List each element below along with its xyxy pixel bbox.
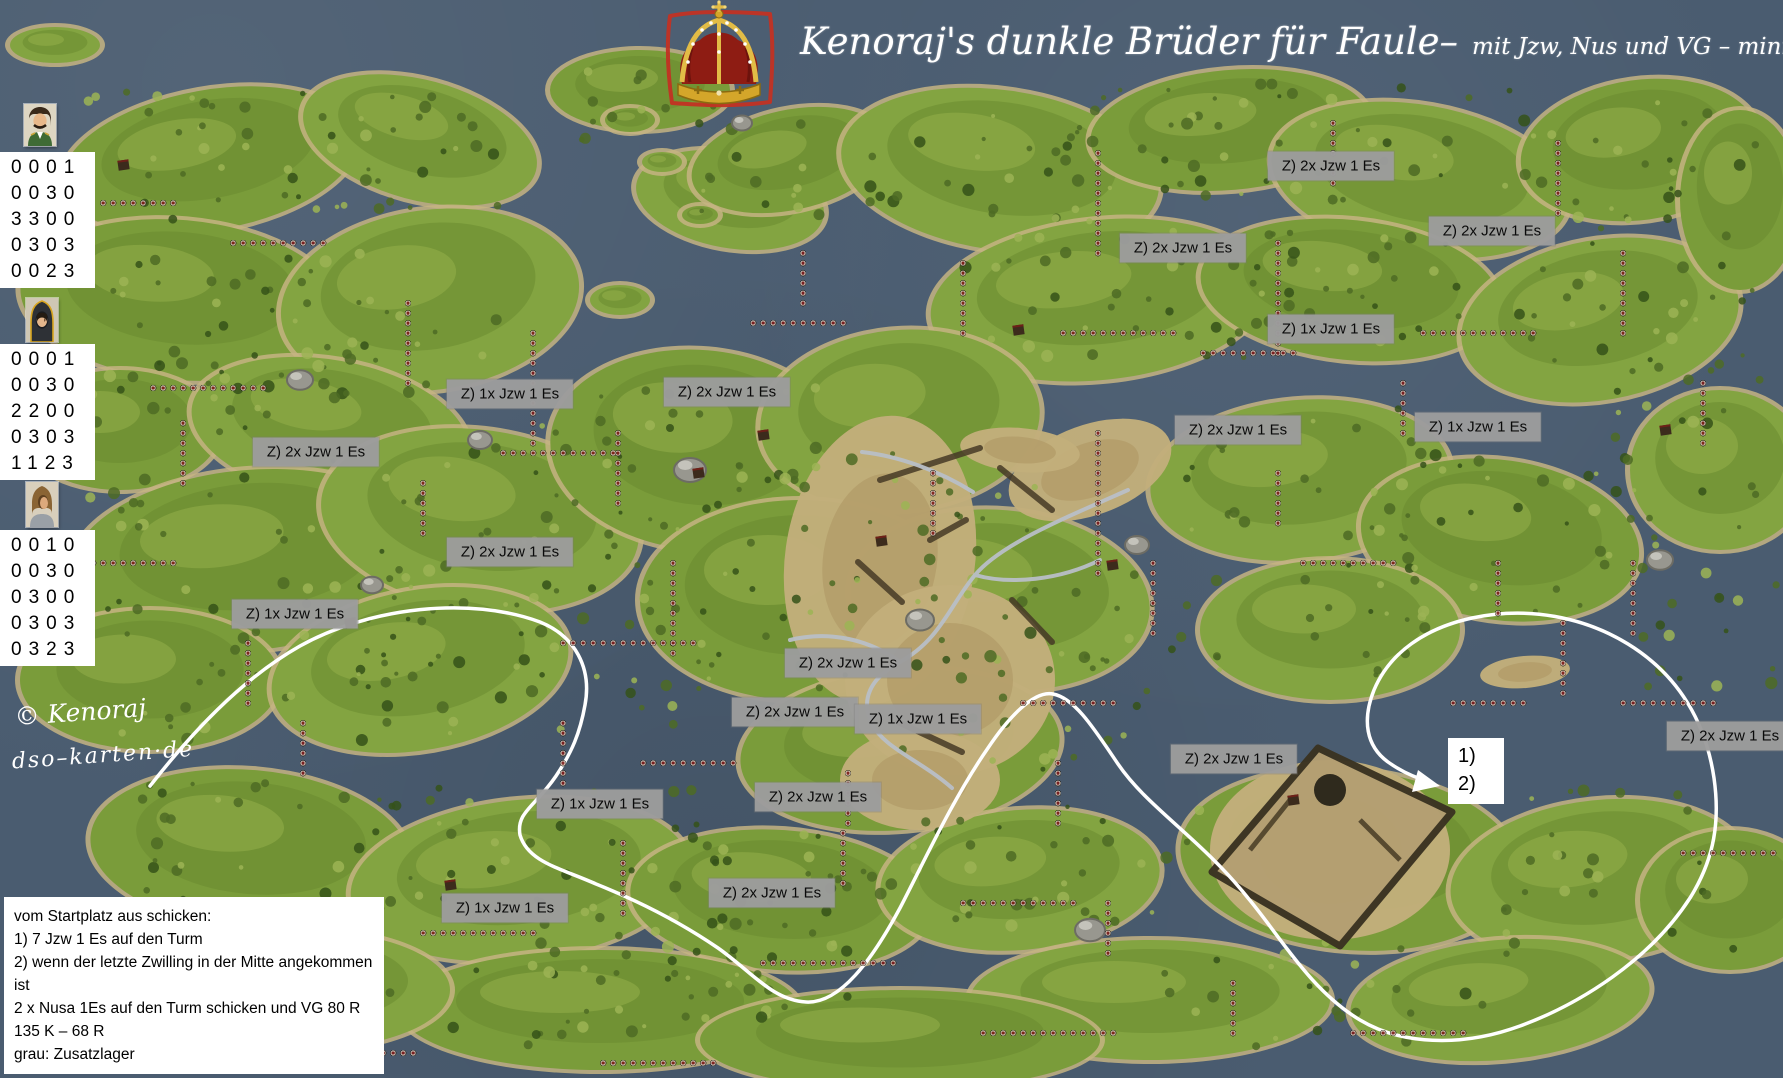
map-label: Z) 1x Jzw 1 Es bbox=[447, 380, 573, 409]
map-label: Z) 2x Jzw 1 Es bbox=[447, 538, 573, 567]
enemy-camp-hut bbox=[1106, 559, 1118, 570]
map-label: Z) 2x Jzw 1 Es bbox=[709, 879, 835, 908]
map-label: Z) 1x Jzw 1 Es bbox=[1415, 413, 1541, 442]
map-label: Z) 2x Jzw 1 Es bbox=[1120, 234, 1246, 263]
map-label: Z) 1x Jzw 1 Es bbox=[442, 894, 568, 923]
enemy-camp-hut bbox=[757, 429, 769, 440]
tower-icon bbox=[1314, 774, 1346, 806]
map-label: Z) 2x Jzw 1 Es bbox=[1429, 217, 1555, 246]
enemy-camp-hut bbox=[1659, 424, 1671, 435]
route-note: 1) 2) bbox=[1448, 738, 1504, 804]
map-label: Z) 1x Jzw 1 Es bbox=[1268, 315, 1394, 344]
enemy-camp-hut bbox=[1287, 794, 1299, 805]
crown-logo bbox=[648, 0, 788, 115]
map-label: Z) 2x Jzw 1 Es bbox=[732, 698, 858, 727]
map-label: Z) 1x Jzw 1 Es bbox=[537, 790, 663, 819]
map-label: Z) 2x Jzw 1 Es bbox=[1171, 745, 1297, 774]
troop-grid-2: 00010030 22000303 1123 bbox=[0, 344, 95, 480]
enemy-camp-hut bbox=[1012, 324, 1024, 335]
map-label: Z) 2x Jzw 1 Es bbox=[664, 378, 790, 407]
map-label: Z) 2x Jzw 1 Es bbox=[1268, 152, 1394, 181]
map-label: Z) 1x Jzw 1 Es bbox=[232, 600, 358, 629]
map-label: Z) 2x Jzw 1 Es bbox=[1175, 416, 1301, 445]
map-label: Z) 2x Jzw 1 Es bbox=[755, 783, 881, 812]
troop-grid-3: 00100030 03000303 0323 bbox=[0, 530, 95, 666]
map-label: Z) 2x Jzw 1 Es bbox=[1667, 722, 1783, 751]
map-label: Z) 2x Jzw 1 Es bbox=[253, 438, 379, 467]
enemy-camp-hut bbox=[444, 879, 456, 890]
map-label: Z) 2x Jzw 1 Es bbox=[785, 649, 911, 678]
troop-grid-1: 00010030 33000303 0023 bbox=[0, 152, 95, 288]
map-label: Z) 1x Jzw 1 Es bbox=[855, 705, 981, 734]
general-portrait-3 bbox=[26, 482, 58, 527]
enemy-camp-hut bbox=[875, 535, 887, 546]
title-subtitle: mit Jzw, Nus und VG – minimale Verluste bbox=[1472, 34, 1783, 60]
crown-icon bbox=[678, 0, 760, 103]
title-main: Kenoraj's dunkle Brüder für Faule– bbox=[800, 20, 1458, 63]
adventure-map: Kenoraj's dunkle Brüder für Faule– mit J… bbox=[0, 0, 1783, 1078]
map-title: Kenoraj's dunkle Brüder für Faule– mit J… bbox=[800, 20, 1783, 63]
watermark: © Kenoraj dso–karten·de bbox=[14, 690, 195, 774]
instructions-box: vom Startplatz aus schicken: 1) 7 Jzw 1 … bbox=[4, 897, 384, 1074]
general-portrait-1 bbox=[24, 104, 56, 146]
general-portrait-2 bbox=[26, 298, 58, 342]
enemy-camp-hut bbox=[117, 159, 129, 170]
enemy-camp-hut bbox=[692, 467, 704, 478]
